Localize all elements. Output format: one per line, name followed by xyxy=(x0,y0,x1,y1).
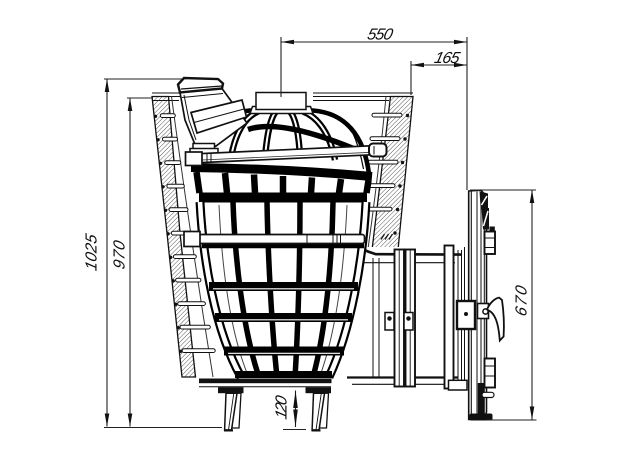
svg-text:550: 550 xyxy=(366,26,395,44)
svg-text:670: 670 xyxy=(513,284,531,318)
svg-text:120: 120 xyxy=(273,394,291,421)
svg-text:165: 165 xyxy=(433,49,463,67)
svg-text:1025: 1025 xyxy=(83,231,101,272)
svg-text:970: 970 xyxy=(111,239,129,271)
